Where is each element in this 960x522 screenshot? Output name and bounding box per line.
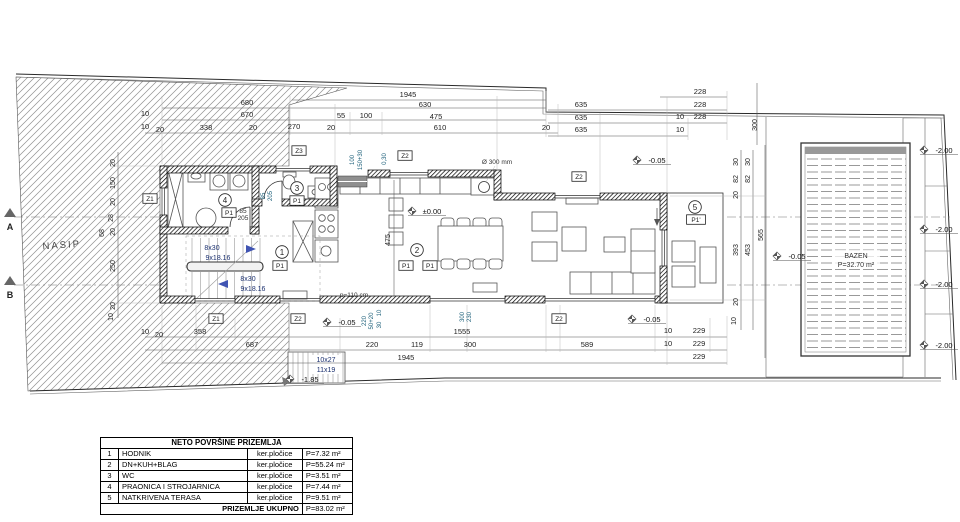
dimension-label: 220 (366, 340, 379, 349)
room-number: 3 (295, 184, 300, 193)
dimension-label: 20 (733, 191, 740, 199)
floor-finish-tag: P1 (276, 263, 284, 270)
annotation-label: 85 (239, 208, 247, 215)
annotation-label: 150+30 (358, 149, 364, 170)
dimension-label: 10 (664, 339, 672, 348)
dimension-label: 338 (200, 123, 213, 132)
annotation-label: Ø 300 mm (482, 159, 512, 166)
level-marker: -2.00 (935, 341, 952, 350)
dimension-label: 10 (141, 109, 149, 118)
pool-label: P=32.70 m² (838, 262, 875, 269)
tv-cabinet (566, 198, 598, 204)
stair-label: 9x18.16 (241, 286, 266, 293)
dimension-label: 28 (108, 214, 115, 222)
annotation-label: 230 (467, 311, 473, 322)
dimension-label: 610 (434, 123, 447, 132)
dining-chair (457, 259, 470, 269)
dining-chair (441, 259, 454, 269)
dimension-label: 393 (733, 244, 740, 256)
level-marker: -0.05 (643, 315, 660, 324)
stair-label: 8x30 (240, 276, 255, 283)
dimension-label: 270 (288, 122, 301, 131)
room-name: HODNIK (118, 449, 247, 460)
floor-finish-tag: P1 (293, 198, 301, 205)
dimension-label: 229 (693, 339, 706, 348)
annotation-label: p=110 cm (340, 292, 368, 299)
floor-finish-tag: P1 (426, 263, 434, 270)
window-tag: Z2 (575, 174, 583, 181)
island-stool (389, 215, 403, 228)
room-finish: ker.pločice (247, 471, 302, 482)
table-row: 4 PRAONICA I STROJARNICA ker.pločice P=7… (101, 482, 353, 493)
dining-chair (473, 259, 486, 269)
dimension-label: 20 (110, 198, 117, 206)
row-number: 2 (101, 460, 119, 471)
dimension-label: 20 (542, 123, 550, 132)
dimension-label: 1555 (454, 327, 471, 336)
dimension-label: 20 (110, 302, 117, 310)
stair-label: 10x27 (316, 357, 335, 364)
dimension-label: 453 (745, 244, 752, 256)
dimension-label: 228 (694, 112, 707, 121)
dimension-label: 228 (694, 87, 707, 96)
dimension-label: 30 (733, 158, 740, 166)
room-name: WC (118, 471, 247, 482)
room-area: P=7.32 m² (302, 449, 352, 460)
floor-plan-page: { "table": { "title": "NETO POVRŠINE PRI… (0, 0, 960, 522)
dimension-label: 20 (156, 125, 164, 134)
total-area: P=83.02 m² (302, 504, 352, 515)
dimension-label: 1945 (398, 353, 415, 362)
dimension-label: 82 (733, 175, 740, 183)
floor-finish-tag: P1 (225, 210, 233, 217)
dimension-label: 100 (360, 111, 373, 120)
room-name: DN+KUH+BLAG (118, 460, 247, 471)
dimension-label: 670 (241, 110, 254, 119)
annotation-label: 220 (362, 315, 368, 326)
level-marker: -0.05 (788, 252, 805, 261)
room-area: P=9.51 m² (302, 493, 352, 504)
table-total-row: PRIZEMLJE UKUPNO P=83.02 m² (101, 504, 353, 515)
areas-table: NETO POVRŠINE PRIZEMLJA 1 HODNIK ker.plo… (100, 437, 353, 515)
annotation-label: 0,30 (382, 153, 388, 165)
section-letter: A (7, 222, 14, 232)
dimension-label: 20 (733, 298, 740, 306)
level-marker: ±0.00 (423, 207, 442, 216)
room-number: 4 (223, 196, 228, 205)
dimension-label: 630 (419, 100, 432, 109)
dimension-label: 565 (758, 229, 765, 241)
stair-down-arrow (218, 280, 228, 288)
table-title: NETO POVRŠINE PRIZEMLJA (101, 438, 353, 449)
stove (315, 210, 338, 238)
stair-label: 11x19 (317, 367, 336, 374)
section-marker-a (4, 208, 16, 217)
room-number: 1 (280, 248, 285, 257)
dimension-label: 119 (411, 340, 423, 349)
level-marker: -0.05 (338, 318, 355, 327)
terrace-chair (672, 241, 695, 262)
kitchen-unit (315, 240, 338, 262)
dimension-label: 10 (676, 112, 684, 121)
stair-label: 8x30 (204, 245, 219, 252)
side-table (604, 237, 625, 252)
dining-chair (489, 259, 502, 269)
row-number: 1 (101, 449, 119, 460)
level-marker: -1.85 (301, 375, 318, 384)
coffee-table (562, 227, 586, 251)
window-tag: Z1 (212, 316, 220, 323)
room-name: NATKRIVENA TERASA (118, 493, 247, 504)
room-finish: ker.pločice (247, 460, 302, 471)
level-marker: -2.00 (935, 225, 952, 234)
annotation-label: 100 (350, 154, 356, 165)
dining-table (438, 226, 503, 261)
dimension-label: 68 (99, 229, 106, 237)
dimension-label: 589 (581, 340, 594, 349)
annotation-label: 85 (261, 192, 267, 199)
terrace-table (700, 247, 716, 283)
dimension-label: 635 (575, 113, 588, 122)
room-finish: ker.pločice (247, 482, 302, 493)
annotation-label: 10 (377, 309, 383, 316)
cabinet (283, 291, 307, 299)
level-marker: -0.05 (648, 156, 665, 165)
dimension-label: 229 (693, 326, 706, 335)
dimension-label: 55 (337, 111, 345, 120)
dimension-label: 20 (110, 159, 117, 167)
dimension-label: 635 (575, 125, 588, 134)
pool-water (805, 147, 906, 352)
annotation-label: 300 (460, 311, 466, 322)
room-finish: ker.pločice (247, 449, 302, 460)
dimension-label: 82 (745, 175, 752, 183)
pool-label: BAZEN (844, 253, 867, 260)
section-marker-b (4, 276, 16, 285)
dimension-label: 475 (385, 234, 392, 246)
dimension-label: 20 (249, 123, 257, 132)
dimension-label: 300 (464, 340, 477, 349)
boiler (196, 208, 216, 228)
sideboard (473, 283, 497, 292)
section-letter: B (7, 290, 14, 300)
total-label: PRIZEMLJE UKUPNO (101, 504, 303, 515)
island-stool (389, 198, 403, 211)
armchair (532, 212, 557, 231)
pool-plot (766, 117, 953, 377)
level-marker: -2.00 (935, 280, 952, 289)
annotation-label: 205 (268, 190, 274, 201)
dimension-label: 475 (430, 112, 443, 121)
level-marker: -2.00 (935, 146, 952, 155)
room-finish: ker.pločice (247, 493, 302, 504)
stair-up-arrow (246, 245, 256, 253)
dimension-label: 20 (110, 228, 117, 236)
window-tag: Z2 (294, 316, 302, 323)
annotation-label: 30 (377, 321, 383, 328)
stair-landing (187, 262, 263, 271)
stair-label: 9x18.16 (206, 255, 231, 262)
dimension-label: 10 (141, 122, 149, 131)
table-title-row: NETO POVRŠINE PRIZEMLJA (101, 438, 353, 449)
window-tag: Z2 (555, 316, 563, 323)
dimension-label: 10 (108, 313, 115, 321)
dimension-label: 250 (110, 260, 117, 272)
window-tag: Z3 (295, 148, 303, 155)
terrace-chair (672, 266, 695, 287)
room-number: 5 (693, 203, 698, 212)
annotation-label: 205 (238, 215, 249, 222)
dimension-label: 20 (155, 330, 163, 339)
pool-edge-band (805, 147, 906, 154)
window-tag: Z1 (146, 196, 154, 203)
room-area: P=3.51 m² (302, 471, 352, 482)
dimension-label: 358 (194, 327, 207, 336)
dimension-label: 10 (664, 326, 672, 335)
dimension-label: 228 (694, 100, 707, 109)
room-number: 2 (415, 246, 420, 255)
table-row: 5 NATKRIVENA TERASA ker.pločice P=9.51 m… (101, 493, 353, 504)
table-row: 1 HODNIK ker.pločice P=7.32 m² (101, 449, 353, 460)
floor-finish-tag: P1' (691, 217, 700, 224)
annotation-label: 50+20 (369, 312, 375, 330)
row-number: 5 (101, 493, 119, 504)
room-name: PRAONICA I STROJARNICA (118, 482, 247, 493)
dimension-label: 635 (575, 100, 588, 109)
dimension-label: 10 (676, 125, 684, 134)
dimension-label: 1945 (400, 90, 417, 99)
armchair (532, 242, 557, 261)
dimension-label: 687 (246, 340, 259, 349)
table-row: 2 DN+KUH+BLAG ker.pločice P=55.24 m² (101, 460, 353, 471)
dimension-label: 300 (752, 119, 759, 131)
dimension-label: 150 (110, 177, 117, 189)
dimension-label: 10 (731, 317, 738, 325)
window-tag: Z2 (401, 153, 409, 160)
dimension-label: 680 (241, 98, 254, 107)
dimension-label: 10 (141, 327, 149, 336)
table-row: 3 WC ker.pločice P=3.51 m² (101, 471, 353, 482)
dimension-label: 229 (693, 352, 706, 361)
sofa (570, 272, 655, 294)
row-number: 3 (101, 471, 119, 482)
room-area: P=55.24 m² (302, 460, 352, 471)
dimension-label: 30 (745, 158, 752, 166)
row-number: 4 (101, 482, 119, 493)
floor-finish-tag: P1 (402, 263, 410, 270)
room-area: P=7.44 m² (302, 482, 352, 493)
dimension-label: 20 (327, 123, 335, 132)
